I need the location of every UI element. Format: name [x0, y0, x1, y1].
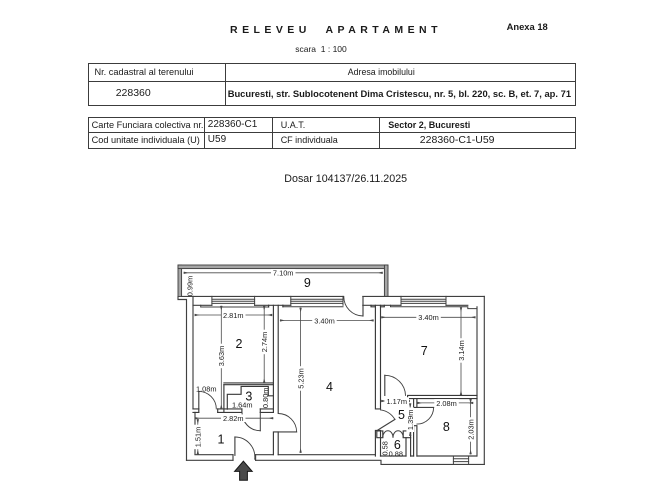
svg-text:3.40m: 3.40m: [418, 313, 439, 322]
svg-text:2.03m: 2.03m: [467, 419, 476, 440]
svg-text:1.17m: 1.17m: [387, 397, 408, 406]
svg-text:0.99m: 0.99m: [186, 276, 195, 297]
svg-text:2.82m: 2.82m: [223, 414, 244, 423]
svg-text:6: 6: [394, 438, 401, 452]
svg-text:5.23m: 5.23m: [297, 368, 306, 389]
svg-text:4: 4: [326, 380, 333, 394]
svg-text:1: 1: [218, 432, 225, 446]
svg-text:2.81m: 2.81m: [223, 311, 244, 320]
svg-text:0.80m: 0.80m: [261, 388, 270, 409]
svg-text:9: 9: [304, 276, 311, 290]
svg-text:8: 8: [443, 420, 450, 434]
svg-text:2.74m: 2.74m: [260, 332, 269, 353]
svg-text:7: 7: [421, 344, 428, 358]
svg-text:2: 2: [236, 337, 243, 351]
svg-text:1.51m: 1.51m: [194, 427, 203, 448]
svg-text:5: 5: [398, 408, 405, 422]
svg-text:1.39m: 1.39m: [406, 410, 415, 431]
svg-text:3.63m: 3.63m: [217, 346, 226, 367]
svg-text:3.14m: 3.14m: [457, 340, 466, 361]
svg-text:7.10m: 7.10m: [273, 269, 294, 278]
svg-text:3.40m: 3.40m: [314, 316, 335, 325]
svg-text:2.08m: 2.08m: [436, 399, 457, 408]
svg-text:1.08m: 1.08m: [196, 384, 217, 393]
svg-text:3: 3: [245, 389, 252, 403]
